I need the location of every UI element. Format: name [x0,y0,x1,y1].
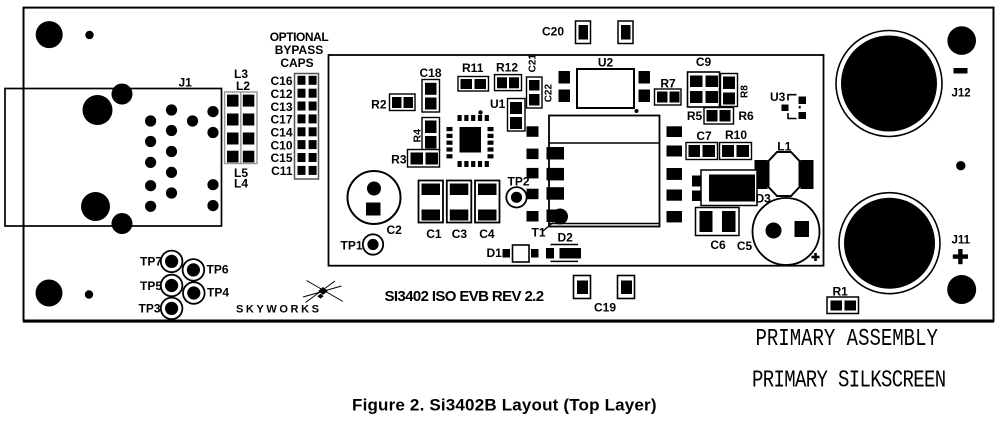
svg-text:TP7: TP7 [140,254,162,268]
svg-text:L4: L4 [234,177,248,191]
svg-text:U2: U2 [598,56,614,70]
svg-text:R12: R12 [496,60,518,74]
svg-text:R11: R11 [462,61,484,75]
svg-text:PRIMARY SILKSCREEN: PRIMARY SILKSCREEN [752,368,945,395]
svg-text:U3: U3 [770,90,786,104]
svg-text:C11: C11 [271,164,293,178]
svg-text:C1: C1 [426,227,442,241]
svg-text:SI3402 ISO EVB REV 2.2: SI3402 ISO EVB REV 2.2 [385,288,544,305]
svg-text:U1: U1 [490,97,506,111]
svg-text:J1: J1 [179,76,193,90]
svg-text:CAPS: CAPS [280,56,313,70]
svg-text:C4: C4 [479,227,495,241]
svg-text:C16: C16 [270,74,292,88]
svg-text:T1: T1 [532,226,546,240]
svg-text:TP1: TP1 [341,239,363,253]
svg-text:C3: C3 [452,227,468,241]
svg-text:C21: C21 [528,54,539,73]
svg-text:TP6: TP6 [207,262,229,276]
svg-text:R10: R10 [725,128,747,142]
svg-text:D2: D2 [558,230,574,244]
svg-text:C7: C7 [696,129,712,143]
svg-text:D1: D1 [487,246,503,260]
svg-text:J12: J12 [952,88,971,100]
svg-text:C18: C18 [419,66,441,80]
svg-text:R5: R5 [687,109,703,123]
svg-text:C12: C12 [270,87,292,101]
svg-text:C19: C19 [594,301,616,315]
svg-text:SKYWORKS: SKYWORKS [236,304,322,316]
svg-text:Figure 2. Si3402B Layout (Top: Figure 2. Si3402B Layout (Top Layer) [352,396,657,415]
svg-text:L2: L2 [236,79,250,93]
svg-text:TP5: TP5 [140,279,162,293]
svg-text:OPTIONAL: OPTIONAL [270,30,329,44]
svg-text:BYPASS: BYPASS [275,43,323,57]
svg-text:C17: C17 [270,113,292,127]
svg-text:J11: J11 [952,235,971,247]
svg-text:C15: C15 [270,151,292,165]
svg-text:C22: C22 [544,84,555,103]
svg-text:C14: C14 [270,126,292,140]
svg-text:TP3: TP3 [139,301,161,315]
svg-text:TP4: TP4 [207,286,229,300]
svg-text:C6: C6 [710,238,726,252]
svg-text:C2: C2 [387,223,403,237]
svg-text:C9: C9 [696,55,712,69]
svg-text:R2: R2 [371,98,387,112]
svg-text:R3: R3 [391,153,407,167]
svg-text:C20: C20 [542,25,564,39]
svg-text:C5: C5 [737,239,753,253]
svg-text:R6: R6 [738,109,754,123]
svg-text:R8: R8 [740,85,751,98]
svg-text:PRIMARY ASSEMBLY: PRIMARY ASSEMBLY [756,326,938,353]
